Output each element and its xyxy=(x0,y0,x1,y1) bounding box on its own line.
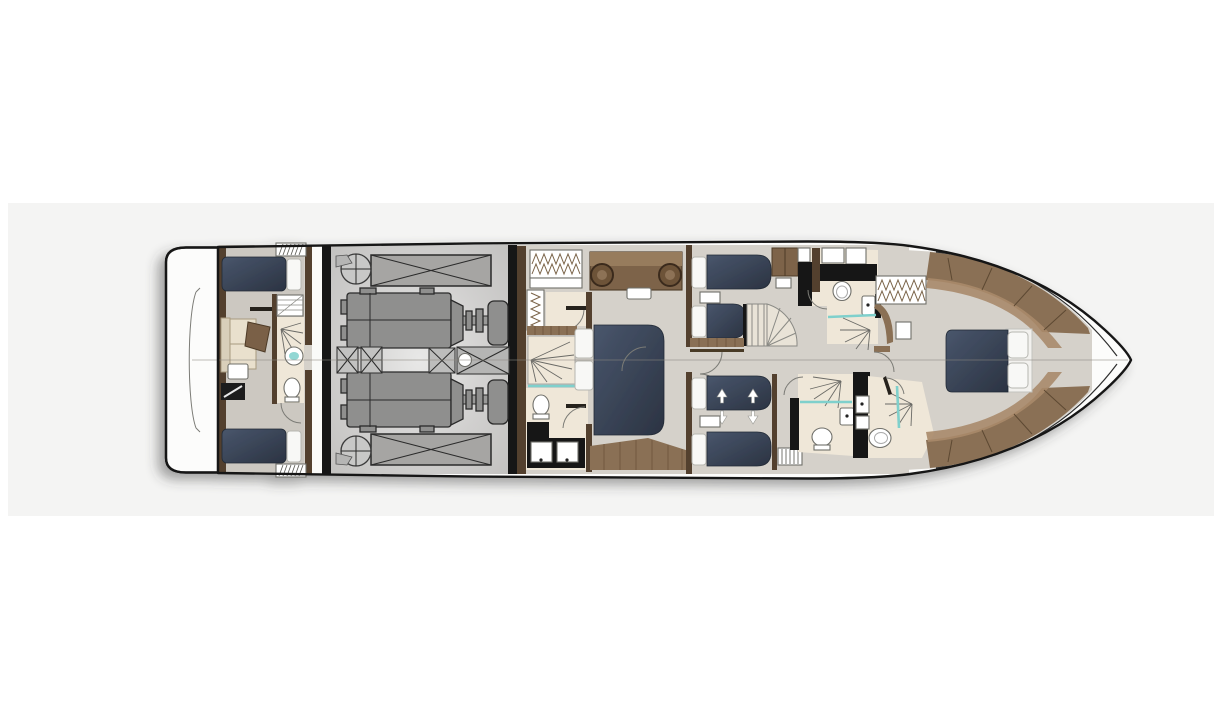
master-wardrobe xyxy=(530,250,582,288)
crew-armchair xyxy=(245,322,270,352)
crew-toilet xyxy=(284,378,300,398)
faucet-dot xyxy=(866,303,869,306)
guest-bed-3 xyxy=(707,376,771,410)
crew-fwd-wall-upper xyxy=(305,245,312,345)
vip-bathroom xyxy=(853,372,934,458)
faucet-dot xyxy=(565,458,568,461)
fwd-wall-upper xyxy=(686,245,692,347)
crew-bed-upper xyxy=(222,257,286,291)
bath-wall-wood xyxy=(812,248,820,292)
toilet-tank xyxy=(814,445,830,450)
bath-cabinet xyxy=(798,248,810,262)
guest-pillow xyxy=(692,257,706,288)
guest-cabin-fwd-wall xyxy=(772,374,777,470)
guest-pillow xyxy=(692,378,706,409)
guest-nightstand xyxy=(700,292,720,303)
yacht-hull-group xyxy=(166,242,1131,479)
vip-pillow-top xyxy=(1008,332,1028,358)
crew-table xyxy=(228,364,248,379)
floor-plan-page xyxy=(0,0,1224,720)
guest-bed-1 xyxy=(707,255,771,289)
master-toilet xyxy=(533,395,549,415)
crew-pillow-lower xyxy=(287,431,301,462)
master-vanity-desk xyxy=(590,252,682,290)
crew-door-leaf xyxy=(250,307,272,311)
yacht-floor-plan xyxy=(0,0,1224,720)
faucet-dot xyxy=(539,458,542,461)
fwd-wall-lower xyxy=(686,372,692,474)
master-bed xyxy=(594,325,664,435)
bell-housing xyxy=(451,379,463,425)
fuel-tank-top xyxy=(371,255,491,286)
crew-toilet-tank xyxy=(285,397,299,402)
faucet-dot xyxy=(845,414,848,417)
bell-housing xyxy=(451,300,463,346)
master-pillow-bottom xyxy=(575,361,593,390)
vip-bed xyxy=(946,330,1008,392)
guest-bed-4 xyxy=(707,432,771,466)
guest-nightstand xyxy=(700,416,720,427)
bed-foot-tray xyxy=(627,288,651,299)
gearbox xyxy=(488,380,508,424)
guest-bed-2 xyxy=(707,304,745,338)
crew-bed-lower xyxy=(222,429,286,463)
master-bath-door-leaf xyxy=(566,306,586,310)
toilet xyxy=(812,428,832,446)
crew-bath-wall xyxy=(272,294,277,404)
vip-nightstand xyxy=(896,322,911,339)
master-bath-threshold xyxy=(527,326,577,335)
master-locker xyxy=(527,290,544,330)
vip-door-sill xyxy=(874,346,890,352)
guest-pillow xyxy=(692,434,706,465)
crew-basin-bowl xyxy=(289,352,299,360)
corridor-sill xyxy=(690,338,744,352)
crew-pillow-upper xyxy=(287,259,301,290)
bath-wall xyxy=(820,264,877,281)
bath-wall xyxy=(790,398,799,450)
bath-cabinet xyxy=(822,248,844,263)
gearbox xyxy=(488,301,508,345)
crew-fwd-wall-lower xyxy=(305,370,312,474)
bath-joiner-wall xyxy=(853,372,870,458)
bath-cabinet xyxy=(846,248,866,264)
master-pillow-top xyxy=(575,329,593,358)
sink-cabinet xyxy=(856,416,869,429)
faucet-dot xyxy=(860,402,863,405)
vip-wardrobe xyxy=(876,276,926,304)
vip-pillow-bottom xyxy=(1008,363,1028,388)
fuel-tank-bottom xyxy=(371,434,491,465)
master-toilet-tank xyxy=(533,414,549,419)
guest-pillow xyxy=(692,306,706,337)
